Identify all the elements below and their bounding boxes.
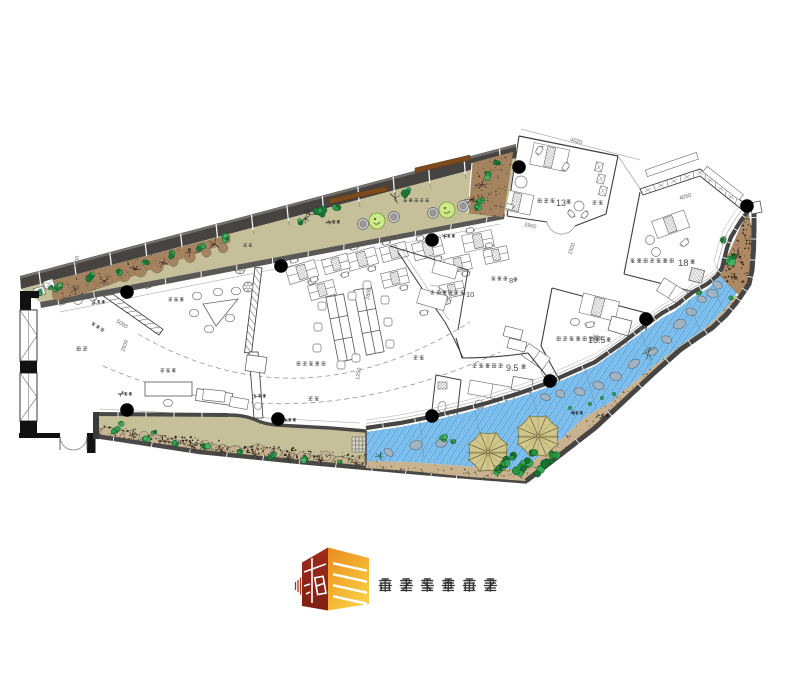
svg-text:18: 18 [678, 258, 689, 269]
svg-text:7800: 7800 [74, 255, 81, 268]
svg-text:9.5: 9.5 [506, 363, 519, 373]
svg-text:16.5: 16.5 [588, 335, 606, 345]
svg-text:10: 10 [466, 290, 474, 299]
svg-text:13: 13 [556, 198, 566, 208]
svg-text:8: 8 [509, 276, 513, 285]
